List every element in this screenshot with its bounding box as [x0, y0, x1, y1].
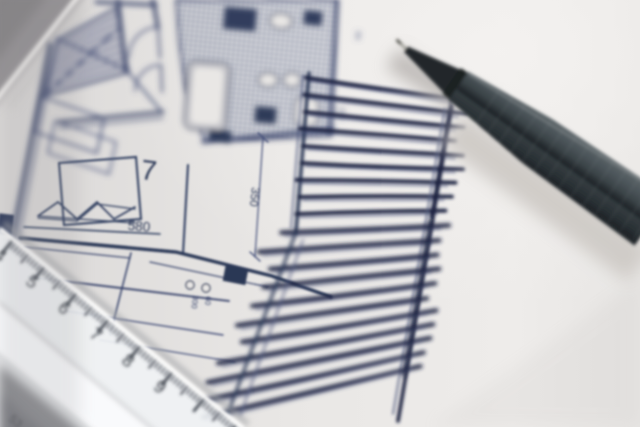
- svg-text:350: 350: [247, 187, 261, 208]
- svg-text:580: 580: [127, 218, 151, 235]
- svg-text:84: 84: [353, 31, 363, 41]
